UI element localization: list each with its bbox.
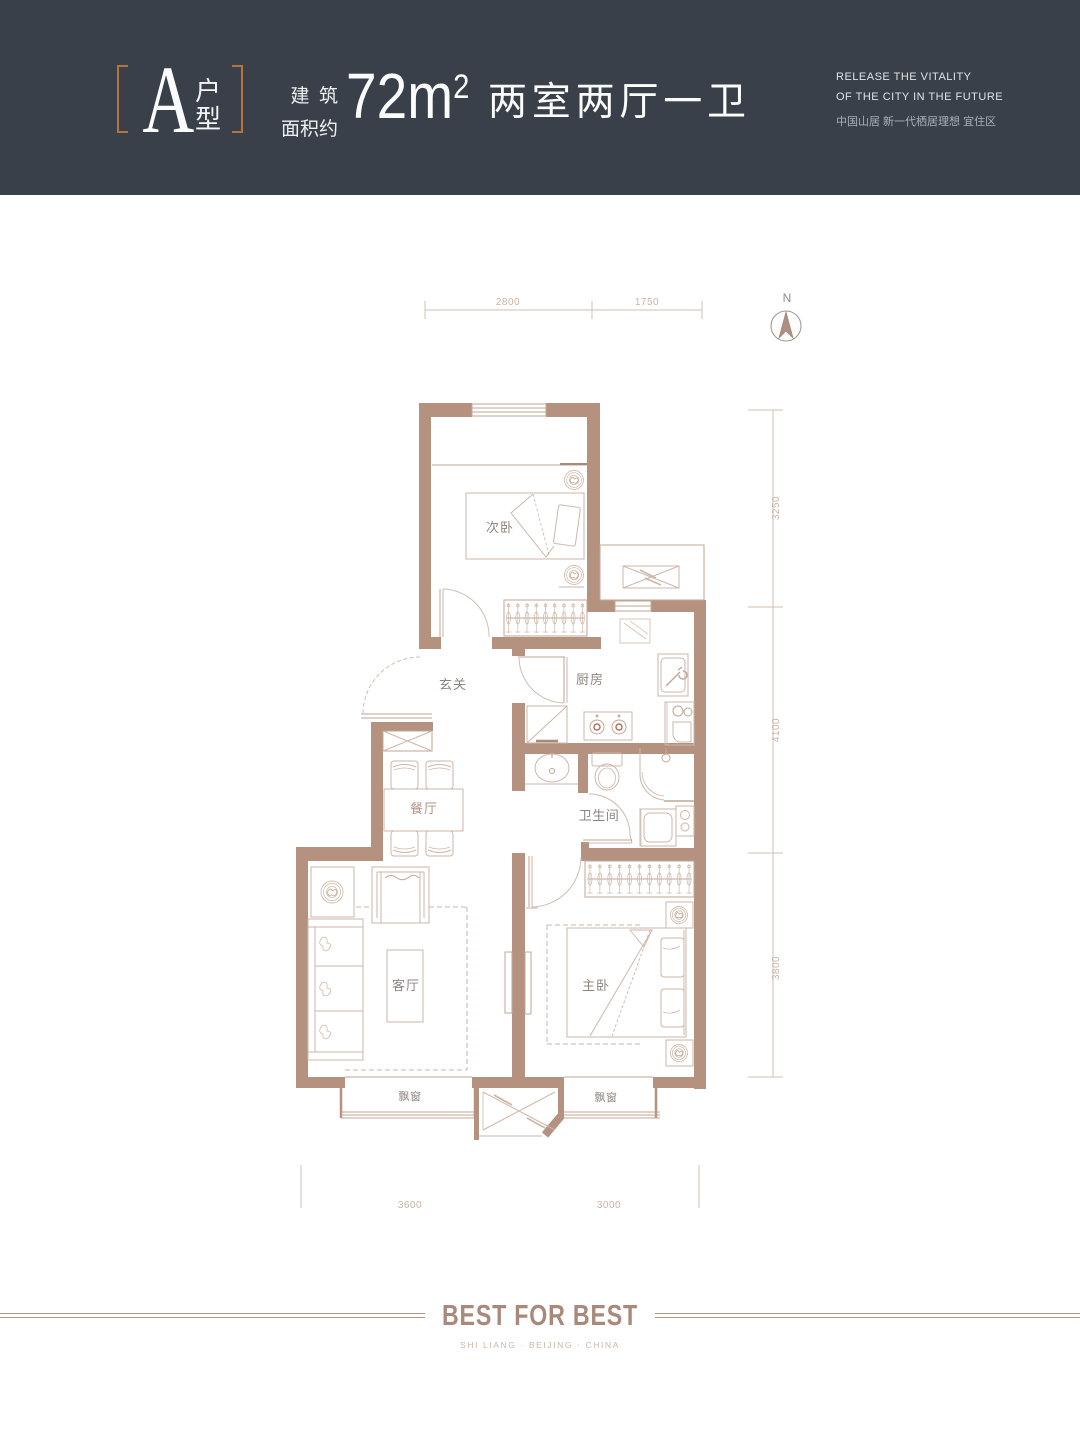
svg-text:餐厅: 餐厅 [410,801,438,816]
svg-text:次卧: 次卧 [486,520,514,535]
svg-text:3600: 3600 [398,1200,422,1211]
svg-text:1750: 1750 [635,297,659,308]
svg-text:3800: 3800 [771,956,782,980]
svg-text:飘窗: 飘窗 [399,1089,422,1103]
svg-text:飘窗: 飘窗 [595,1090,618,1104]
svg-text:厨房: 厨房 [576,672,604,687]
svg-text:2800: 2800 [496,297,520,308]
svg-text:N: N [783,291,792,305]
svg-text:4100: 4100 [771,718,782,742]
svg-text:3000: 3000 [597,1200,621,1211]
svg-text:玄关: 玄关 [439,677,467,692]
svg-text:主卧: 主卧 [582,978,610,993]
svg-text:客厅: 客厅 [392,978,420,993]
svg-text:卫生间: 卫生间 [579,808,620,823]
svg-text:3250: 3250 [771,496,782,520]
